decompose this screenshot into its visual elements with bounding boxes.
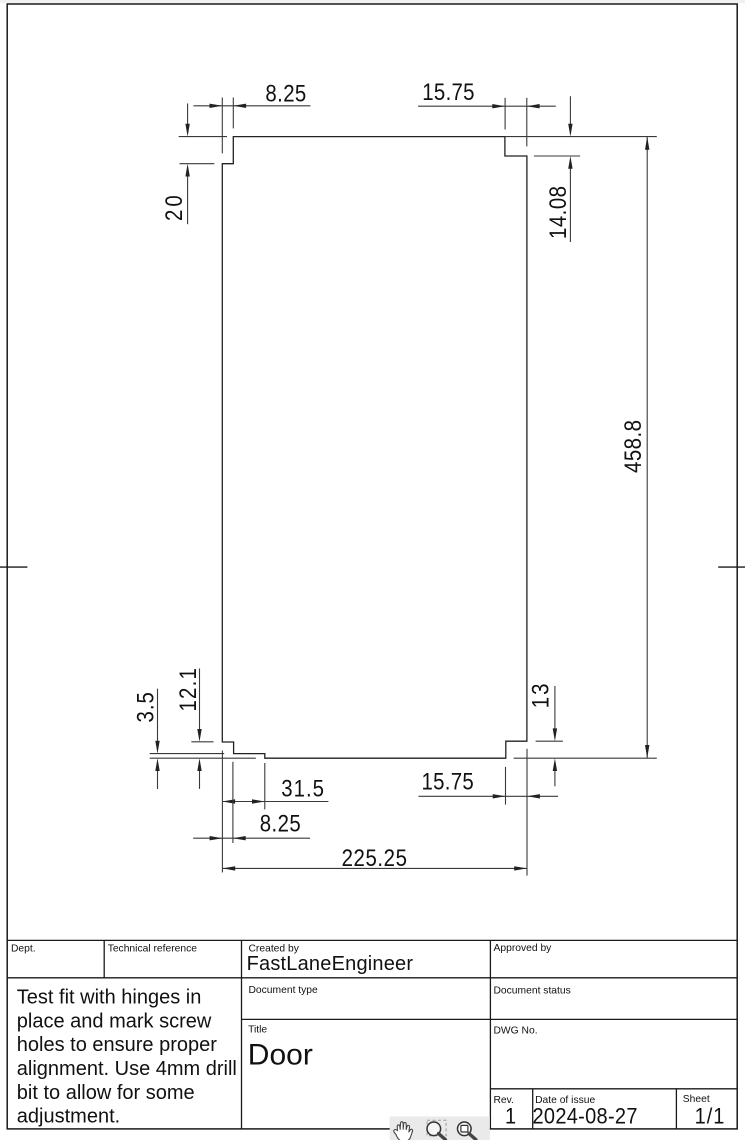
svg-text:Document status: Document status [494, 986, 571, 997]
svg-text:15.75: 15.75 [422, 78, 475, 105]
svg-text:1: 1 [505, 1105, 516, 1129]
svg-text:13: 13 [527, 682, 554, 709]
svg-text:3.5: 3.5 [132, 691, 159, 722]
svg-text:Door: Door [248, 1039, 313, 1072]
svg-text:Title: Title [248, 1025, 267, 1036]
svg-text:place and mark screw: place and mark screw [17, 1011, 212, 1033]
svg-text:8.25: 8.25 [265, 80, 306, 107]
svg-text:31.5: 31.5 [281, 775, 325, 802]
svg-text:FastLaneEngineer: FastLaneEngineer [247, 953, 414, 975]
svg-text:adjustment.: adjustment. [17, 1106, 120, 1128]
svg-text:Test fit with hinges in: Test fit with hinges in [17, 987, 202, 1009]
svg-text:225.25: 225.25 [342, 844, 408, 871]
svg-text:12.1: 12.1 [174, 667, 201, 711]
svg-text:alignment. Use 4mm drill: alignment. Use 4mm drill [17, 1058, 237, 1080]
svg-text:2024-08-27: 2024-08-27 [533, 1105, 638, 1129]
svg-text:20: 20 [160, 192, 187, 221]
svg-text:Approved by: Approved by [494, 943, 553, 954]
svg-text:Technical reference: Technical reference [108, 943, 198, 954]
svg-text:holes to ensure proper: holes to ensure proper [17, 1034, 217, 1056]
svg-text:Document type: Document type [249, 985, 319, 996]
svg-text:bit to allow for some: bit to allow for some [17, 1082, 195, 1104]
svg-text:DWG No.: DWG No. [494, 1026, 538, 1037]
svg-text:8.25: 8.25 [260, 810, 301, 837]
svg-text:1/1: 1/1 [695, 1105, 726, 1129]
svg-text:458.8: 458.8 [619, 419, 646, 473]
svg-text:15.75: 15.75 [422, 768, 475, 795]
svg-text:Sheet: Sheet [683, 1094, 710, 1105]
svg-text:Dept.: Dept. [11, 944, 36, 955]
svg-text:14.08: 14.08 [544, 185, 571, 239]
